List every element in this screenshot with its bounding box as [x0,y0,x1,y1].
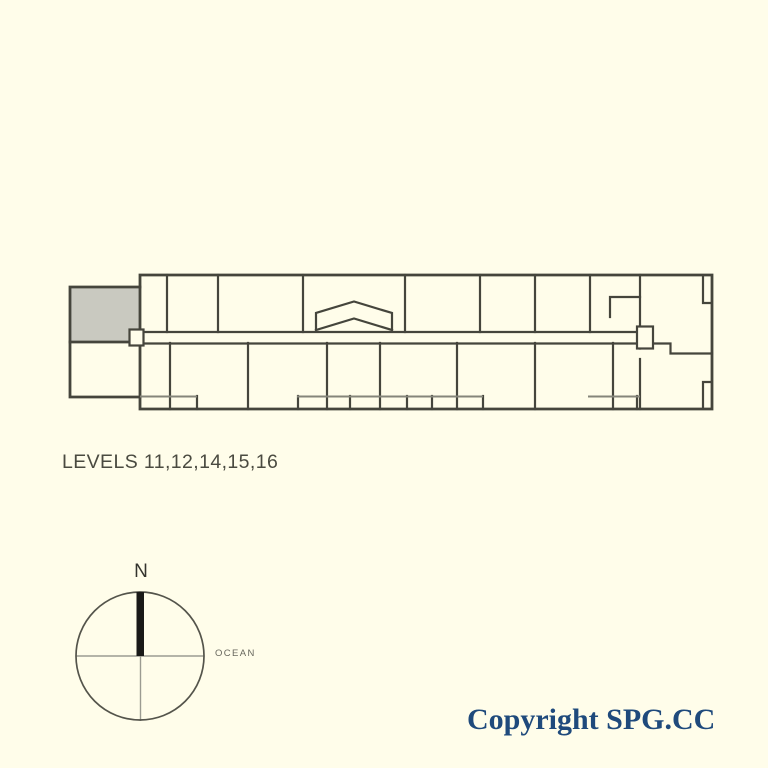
compass-north-bar [137,592,145,656]
levels-label: LEVELS 11,12,14,15,16 [62,451,278,474]
compass-north-label: N [129,561,153,583]
page-canvas: LEVELS 11,12,14,15,16 N OCEAN Copyright … [0,0,768,768]
copyright-text: Copyright SPG.CC [467,703,715,737]
compass-ocean-label: OCEAN [215,648,256,659]
compass-rose [0,0,768,768]
